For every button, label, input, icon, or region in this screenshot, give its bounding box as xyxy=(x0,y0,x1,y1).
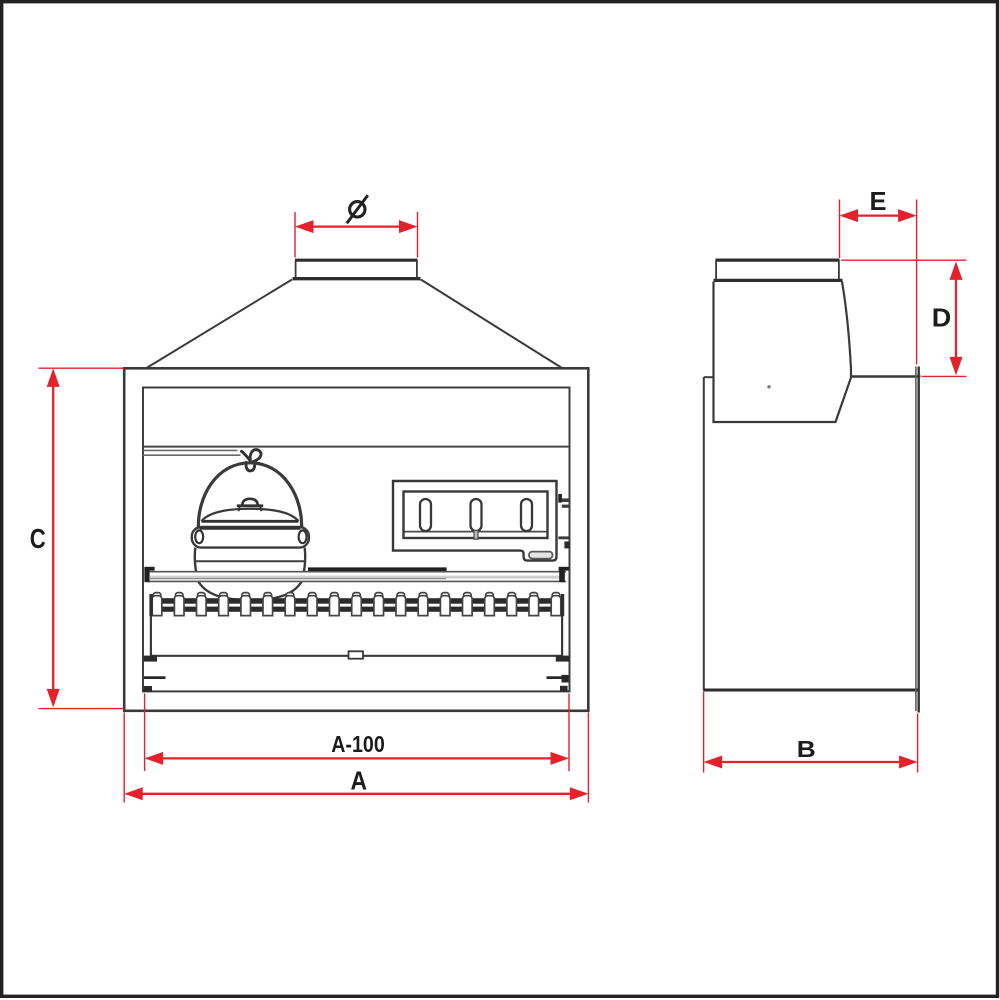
svg-text:A-100: A-100 xyxy=(331,731,385,757)
svg-text:E: E xyxy=(870,186,887,216)
svg-text:C: C xyxy=(30,523,46,554)
svg-text:A: A xyxy=(351,765,368,795)
svg-text:B: B xyxy=(797,736,816,762)
svg-text:D: D xyxy=(932,303,952,333)
